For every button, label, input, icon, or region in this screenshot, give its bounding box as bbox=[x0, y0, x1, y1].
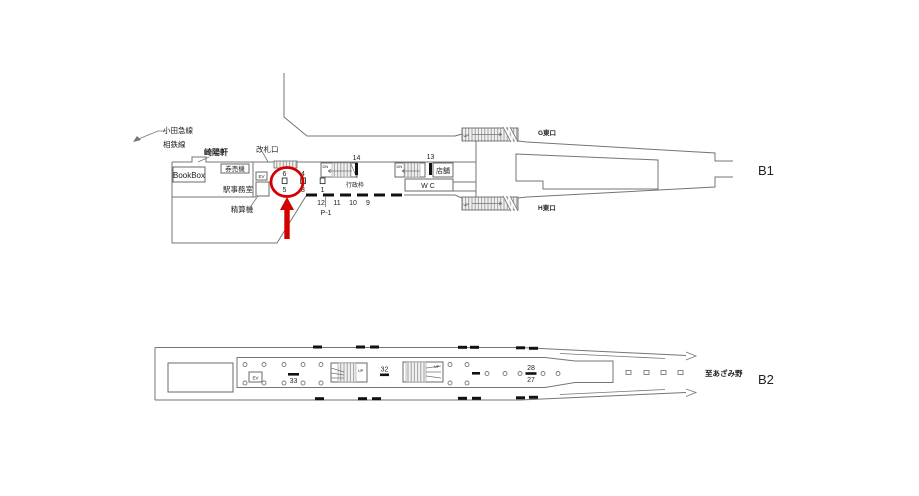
admin-frame-label: 行政枠 bbox=[346, 181, 364, 189]
ad-no10: 10 bbox=[349, 200, 357, 207]
ad-no32: 32 bbox=[381, 367, 389, 374]
floorplan-svg: 小田急線 相鉄線 崎陽軒 BookBox 券売機 改札口 EV 精算機 駅事務室 bbox=[0, 0, 919, 491]
station-office-label: 駅事務室 bbox=[223, 184, 253, 194]
sotetsu-line-label: 相鉄線 bbox=[163, 139, 186, 149]
stair-up-label: UP bbox=[464, 134, 470, 138]
ad-no14: 14 bbox=[353, 155, 361, 162]
ad-panel-28-27 bbox=[526, 372, 537, 375]
b1-stair-down-2: DN bbox=[395, 163, 425, 177]
h-east-exit-label: H東口 bbox=[538, 203, 556, 212]
ad-panel-icon bbox=[282, 178, 287, 184]
track-arrowhead-bottom-icon bbox=[686, 389, 696, 397]
ad-no1: 1 bbox=[321, 187, 325, 194]
b2-stair-up-2: UP bbox=[403, 362, 443, 382]
wc-label: WC bbox=[421, 183, 437, 190]
b1-stair-down-1: DN bbox=[321, 162, 357, 178]
ad-no12: 12 bbox=[317, 200, 325, 207]
g-exit-stair: UP bbox=[462, 127, 518, 142]
ad-no9: 9 bbox=[366, 200, 370, 207]
stair-up-label: UP bbox=[358, 369, 364, 373]
b2-stair-up-1: UP bbox=[331, 363, 367, 382]
funnel-bottom-wall bbox=[518, 177, 733, 198]
ad-p1: P-1 bbox=[321, 210, 332, 217]
stair-steps-icon bbox=[406, 362, 426, 382]
station-floorplan: 小田急線 相鉄線 崎陽軒 BookBox 券売機 改札口 EV 精算機 駅事務室 bbox=[0, 0, 919, 491]
funnel-top-wall bbox=[518, 141, 733, 161]
b2-top-inner-track bbox=[560, 354, 665, 359]
ad-panel-33 bbox=[288, 373, 299, 376]
b1-left-block-top-wall bbox=[172, 157, 274, 162]
line-transfer-arrow bbox=[133, 131, 166, 142]
b1-elevator-label: EV bbox=[258, 174, 264, 179]
shop-label: 店舗 bbox=[436, 166, 450, 175]
b1-level: 小田急線 相鉄線 崎陽軒 BookBox 券売機 改札口 EV 精算機 駅事務室 bbox=[133, 73, 774, 243]
odakyu-line-label: 小田急線 bbox=[163, 125, 193, 135]
ad-panel-32 bbox=[380, 374, 389, 377]
fare-adjustment-label: 精算機 bbox=[231, 204, 254, 214]
arrowhead-icon bbox=[280, 197, 294, 210]
arrowhead-icon bbox=[133, 136, 141, 142]
ad-panel-14 bbox=[355, 163, 358, 175]
ticket-machine-label: 券売機 bbox=[225, 164, 245, 173]
track-arrowhead-top-icon bbox=[686, 352, 696, 360]
stair-up-label: UP bbox=[434, 365, 440, 369]
b2-end-pillars bbox=[626, 371, 683, 375]
b1-level-label: B1 bbox=[758, 163, 774, 178]
stair-dn-label: DN bbox=[323, 164, 329, 169]
stair-steps-icon bbox=[404, 163, 420, 177]
ad-panel-dash bbox=[472, 372, 480, 375]
to-azamino-label: 至あざみ野 bbox=[705, 368, 743, 378]
ad-no5: 5 bbox=[283, 187, 287, 194]
b2-left-room bbox=[168, 363, 233, 392]
ticket-gate-label: 改札口 bbox=[256, 144, 279, 154]
b2-bottom-wall bbox=[155, 393, 686, 401]
stair-steps-icon bbox=[332, 163, 351, 177]
ad-sign-6-5: 6 5 bbox=[282, 171, 287, 194]
b2-level-label: B2 bbox=[758, 372, 774, 387]
kiyoken-leader bbox=[198, 157, 209, 162]
stair-steps-icon bbox=[338, 363, 356, 382]
arrow-shaft bbox=[284, 208, 289, 239]
h-exit-stair: UP bbox=[462, 196, 518, 211]
ad-panel-13 bbox=[429, 163, 432, 175]
b2-level: EV 33 UP 32 UP 28 27 至あざみ bbox=[155, 346, 774, 401]
stair-up-label: UP bbox=[464, 203, 470, 207]
ad-no11: 11 bbox=[333, 200, 340, 207]
stair-dn-label: DN bbox=[397, 164, 403, 169]
ad-no6: 6 bbox=[283, 171, 287, 178]
funnel-inner-void bbox=[516, 154, 658, 189]
ad-no28: 28 bbox=[527, 365, 535, 372]
ad-no13: 13 bbox=[427, 154, 435, 161]
b1-lower-wall bbox=[404, 195, 462, 198]
b2-top-wall bbox=[155, 348, 686, 356]
b1-upper-wall bbox=[284, 73, 462, 136]
ad-panel-icon bbox=[320, 178, 325, 184]
ticket-gate-leader bbox=[263, 153, 268, 162]
ad-no27: 27 bbox=[527, 377, 535, 384]
bookbox-label: BookBox bbox=[173, 171, 205, 180]
b2-elevator-label: EV bbox=[252, 376, 258, 381]
g-east-exit-label: G東口 bbox=[538, 128, 556, 137]
fare-adjustment-box bbox=[256, 182, 269, 196]
ad-no33: 33 bbox=[290, 378, 298, 385]
b1-right-partitions bbox=[453, 136, 476, 198]
arrow-line bbox=[136, 131, 166, 140]
kiyoken-label: 崎陽軒 bbox=[204, 147, 228, 157]
